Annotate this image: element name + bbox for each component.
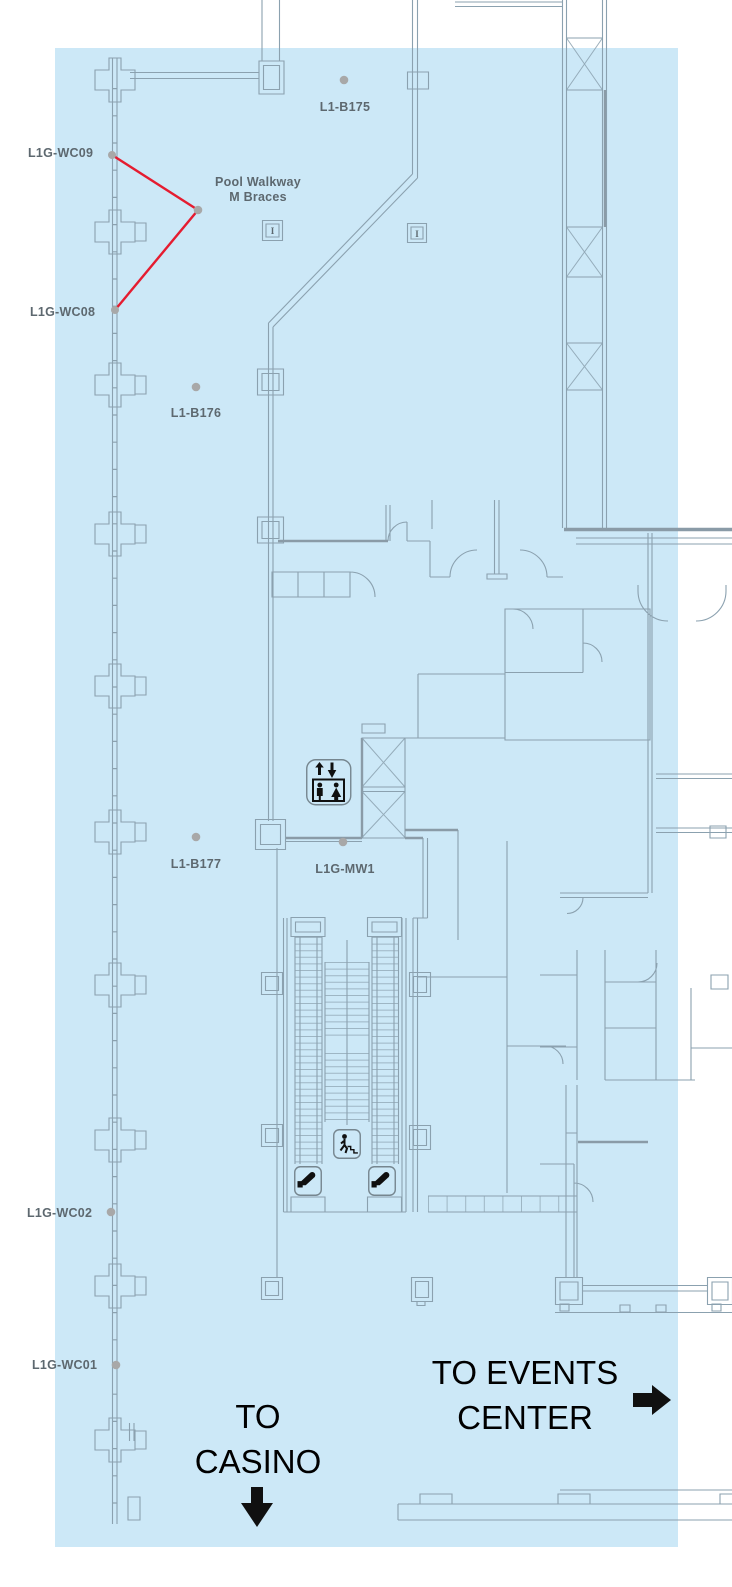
marker-l1g-wc08[interactable] — [111, 306, 119, 314]
marker-l1g-wc09[interactable] — [108, 151, 116, 159]
marker-pool-walkway[interactable] — [194, 206, 203, 215]
marker-l1g-mw1[interactable] — [339, 838, 348, 847]
room-label-l1g-wc08: L1G-WC08 — [30, 305, 95, 320]
up-arrow-stem — [318, 768, 321, 776]
marker-l1g-wc01[interactable] — [112, 1361, 121, 1370]
column-i-marker: I — [415, 229, 419, 239]
marker-l1-b177[interactable] — [192, 833, 201, 842]
man-icon — [317, 783, 322, 788]
down-arrow-stem — [331, 763, 334, 771]
pool-walkway-line2: M Braces — [215, 190, 301, 205]
room-label-l1-b175: L1-B175 — [320, 100, 370, 115]
to-events-center-label: TO EVENTS CENTER — [432, 1350, 618, 1440]
to-events-line2: CENTER — [432, 1395, 618, 1440]
woman-icon — [334, 783, 339, 788]
walking-person-icon — [342, 1134, 347, 1139]
marker-l1g-wc02[interactable] — [107, 1208, 116, 1217]
to-casino-line1: TO — [195, 1394, 322, 1439]
room-label-pool-walkway: Pool Walkway M Braces — [215, 175, 301, 204]
floor-plan-canvas[interactable]: I I — [0, 0, 732, 1587]
pool-walkway-line1: Pool Walkway — [215, 175, 301, 190]
to-events-line1: TO EVENTS — [432, 1350, 618, 1395]
room-label-l1g-mw1: L1G-MW1 — [315, 862, 374, 877]
room-label-l1g-wc09: L1G-WC09 — [28, 146, 93, 161]
to-casino-line2: CASINO — [195, 1439, 322, 1484]
walkway-highlight — [55, 48, 678, 1547]
room-label-l1-b177: L1-B177 — [171, 857, 221, 872]
room-label-l1-b176: L1-B176 — [171, 406, 221, 421]
marker-l1-b175[interactable] — [340, 76, 349, 85]
column-i-marker: I — [271, 226, 275, 236]
to-casino-label: TO CASINO — [195, 1394, 322, 1484]
marker-l1-b176[interactable] — [192, 383, 201, 392]
room-label-l1g-wc02: L1G-WC02 — [27, 1206, 92, 1221]
floor-plan: I I — [0, 0, 732, 1587]
room-label-l1g-wc01: L1G-WC01 — [32, 1358, 97, 1373]
